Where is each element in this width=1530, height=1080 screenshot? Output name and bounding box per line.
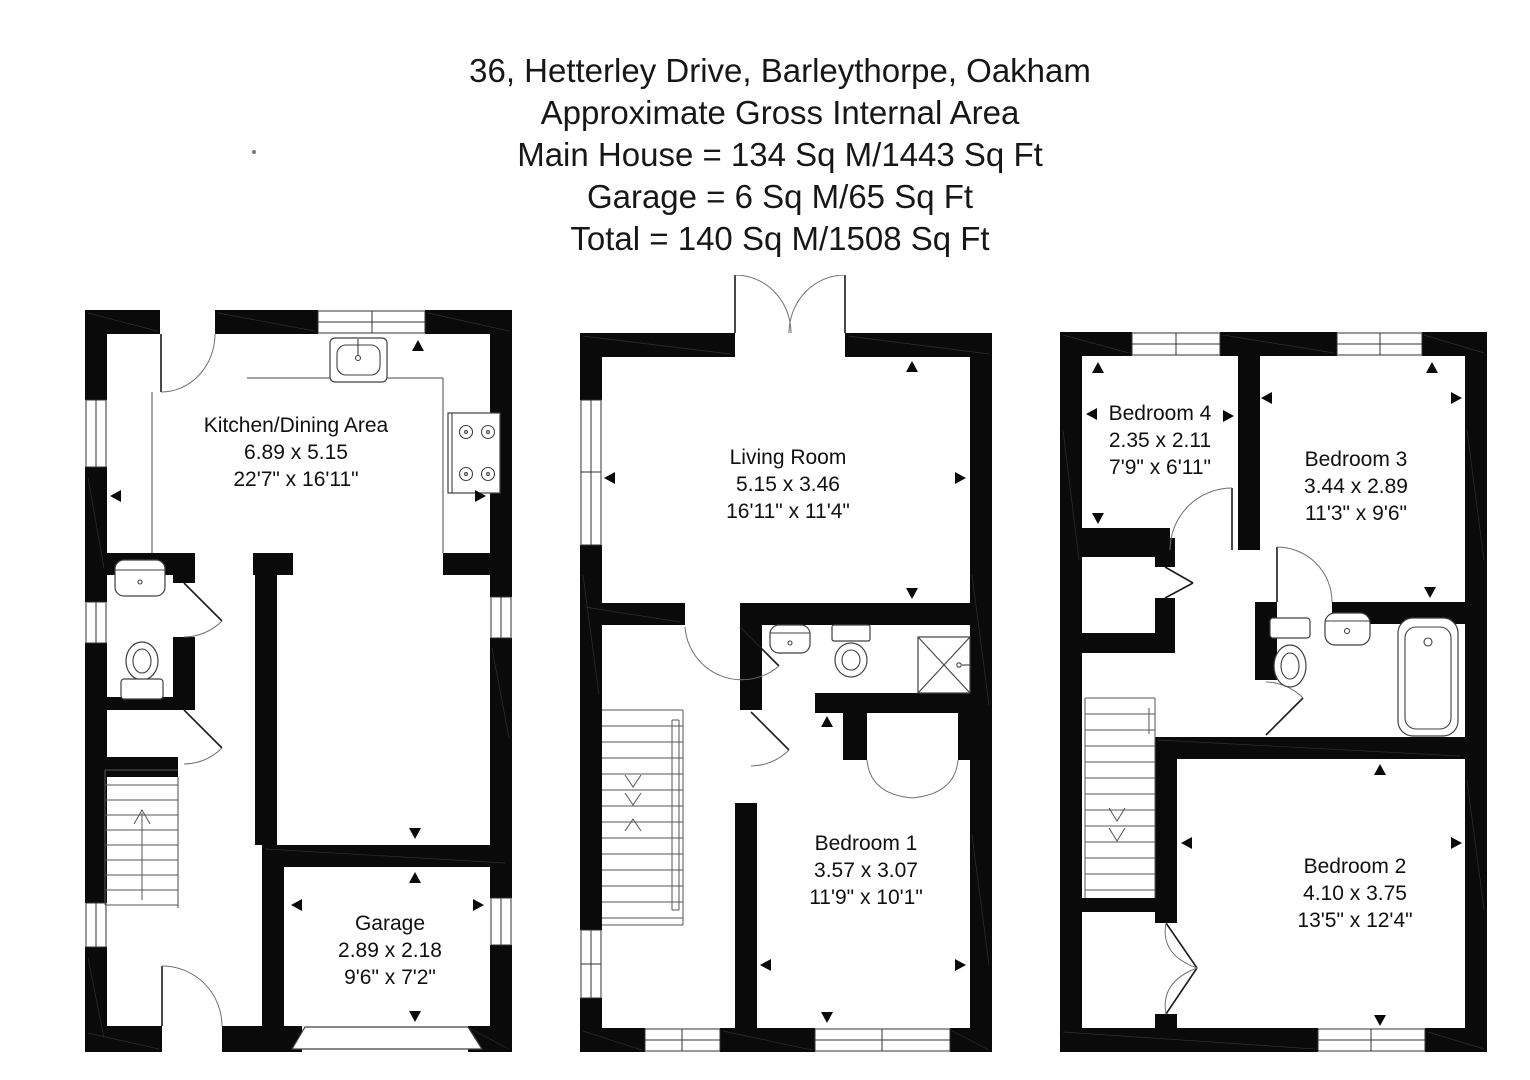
staircase-icon bbox=[105, 770, 178, 905]
garage-door-icon bbox=[292, 1027, 482, 1049]
room-dims-metric: 3.57 x 3.07 bbox=[741, 857, 991, 884]
room-dims-metric: 5.15 x 3.46 bbox=[663, 471, 913, 498]
room-label-garage: Garage 2.89 x 2.18 9'6" x 7'2" bbox=[290, 910, 490, 991]
stray-mark bbox=[252, 150, 256, 154]
title-block: 36, Hetterley Drive, Barleythorpe, Oakha… bbox=[30, 50, 1530, 260]
room-dims-imperial: 16'11" x 11'4" bbox=[663, 498, 913, 525]
room-name: Bedroom 2 bbox=[1255, 853, 1455, 880]
room-dims-metric: 2.35 x 2.11 bbox=[1060, 427, 1260, 454]
room-dims-metric: 4.10 x 3.75 bbox=[1255, 880, 1455, 907]
room-dims-imperial: 11'3" x 9'6" bbox=[1256, 500, 1456, 527]
room-dims-imperial: 7'9" x 6'11" bbox=[1060, 454, 1260, 481]
room-label-bedroom-2: Bedroom 2 4.10 x 3.75 13'5" x 12'4" bbox=[1255, 853, 1455, 934]
room-name: Bedroom 3 bbox=[1256, 446, 1456, 473]
floorplan-page: 36, Hetterley Drive, Barleythorpe, Oakha… bbox=[0, 0, 1530, 1080]
bathroom-sink-icon bbox=[770, 625, 810, 653]
room-dims-imperial: 9'6" x 7'2" bbox=[290, 964, 490, 991]
first-floor-plan bbox=[580, 275, 992, 1052]
room-dims-metric: 3.44 x 2.89 bbox=[1256, 473, 1456, 500]
title-total: Total = 140 Sq M/1508 Sq Ft bbox=[30, 218, 1530, 260]
cloakroom-sink-icon bbox=[115, 560, 165, 596]
room-dims-imperial: 22'7" x 16'11" bbox=[171, 466, 421, 493]
kitchen-sink-icon bbox=[330, 338, 387, 382]
staircase-icon bbox=[602, 710, 683, 925]
room-name: Kitchen/Dining Area bbox=[171, 412, 421, 439]
staircase-icon bbox=[1085, 698, 1155, 898]
title-garage: Garage = 6 Sq M/65 Sq Ft bbox=[30, 176, 1530, 218]
room-name: Living Room bbox=[663, 444, 913, 471]
room-label-kitchen-dining: Kitchen/Dining Area 6.89 x 5.15 22'7" x … bbox=[171, 412, 421, 493]
bathroom-sink-icon bbox=[1325, 613, 1370, 645]
title-area-heading: Approximate Gross Internal Area bbox=[30, 92, 1530, 134]
wardrobe-doors-icon bbox=[867, 760, 958, 798]
room-label-bedroom-1: Bedroom 1 3.57 x 3.07 11'9" x 10'1" bbox=[741, 830, 991, 911]
room-name: Bedroom 4 bbox=[1060, 400, 1260, 427]
room-label-bedroom-4: Bedroom 4 2.35 x 2.11 7'9" x 6'11" bbox=[1060, 400, 1260, 481]
title-main-house: Main House = 134 Sq M/1443 Sq Ft bbox=[30, 134, 1530, 176]
title-address: 36, Hetterley Drive, Barleythorpe, Oakha… bbox=[30, 50, 1530, 92]
shower-icon bbox=[918, 637, 970, 693]
room-dims-imperial: 13'5" x 12'4" bbox=[1255, 907, 1455, 934]
bath-icon bbox=[1398, 618, 1458, 736]
bathroom-toilet-icon bbox=[832, 625, 870, 677]
cloakroom-toilet-icon bbox=[121, 642, 163, 699]
room-dims-metric: 6.89 x 5.15 bbox=[171, 439, 421, 466]
room-label-bedroom-3: Bedroom 3 3.44 x 2.89 11'3" x 9'6" bbox=[1256, 446, 1456, 527]
room-dims-metric: 2.89 x 2.18 bbox=[290, 937, 490, 964]
room-label-living-room: Living Room 5.15 x 3.46 16'11" x 11'4" bbox=[663, 444, 913, 525]
stove-icon bbox=[448, 413, 500, 493]
room-name: Bedroom 1 bbox=[741, 830, 991, 857]
room-name: Garage bbox=[290, 910, 490, 937]
french-doors-icon bbox=[735, 275, 845, 333]
room-dims-imperial: 11'9" x 10'1" bbox=[741, 884, 991, 911]
